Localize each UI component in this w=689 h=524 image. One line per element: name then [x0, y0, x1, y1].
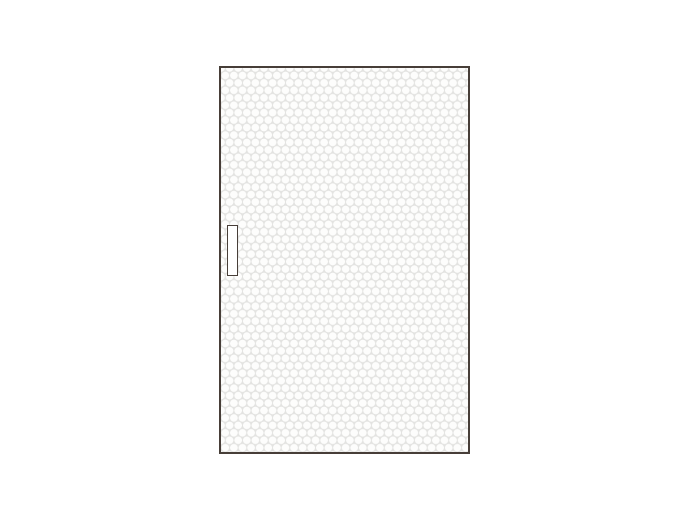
- door-panel: [219, 66, 470, 454]
- illustration-canvas: [0, 0, 689, 524]
- door-handle: [227, 225, 238, 276]
